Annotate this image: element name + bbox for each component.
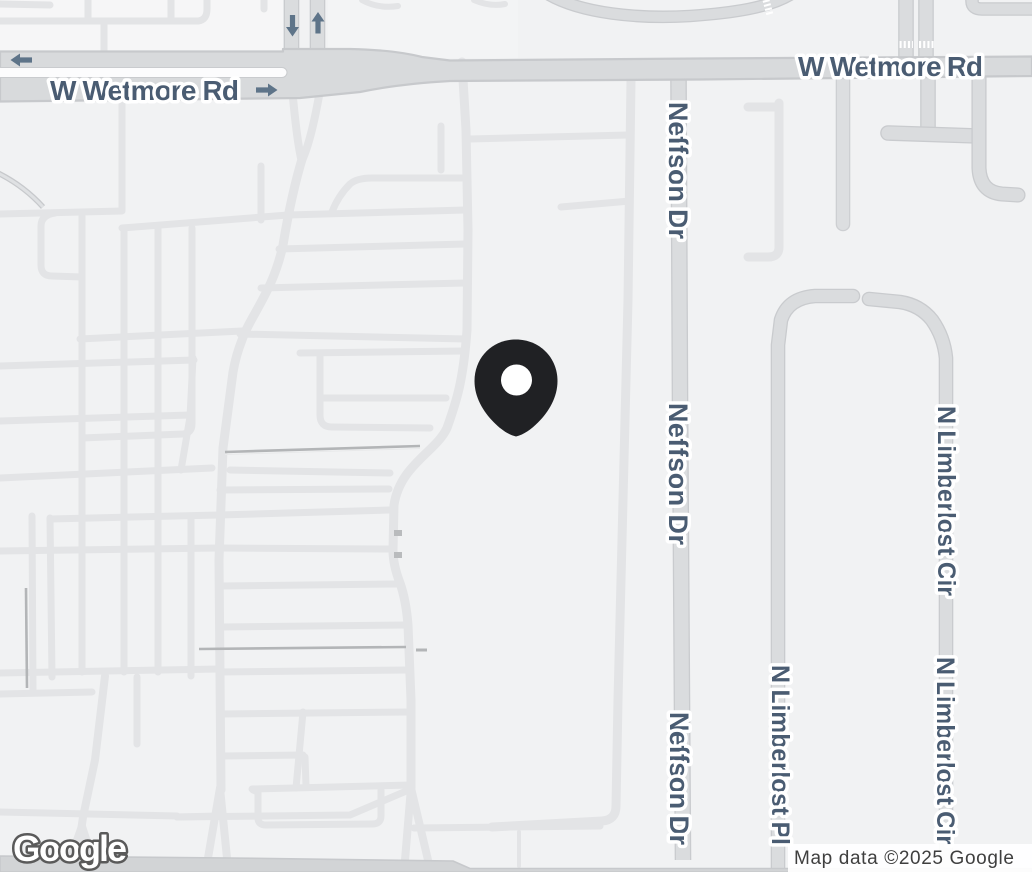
svg-text:W Wetmore Rd: W Wetmore Rd xyxy=(50,75,239,106)
svg-text:N Limberlost Cir: N Limberlost Cir xyxy=(931,657,959,845)
svg-text:Map data ©2025 Google: Map data ©2025 Google xyxy=(794,848,1014,869)
svg-text:Neffson Dr: Neffson Dr xyxy=(664,712,694,845)
svg-text:W Wetmore Rd: W Wetmore Rd xyxy=(798,51,983,82)
svg-text:Google: Google xyxy=(13,828,127,869)
svg-text:N Limberlost Pl: N Limberlost Pl xyxy=(766,665,794,845)
svg-text:Neffson Dr: Neffson Dr xyxy=(663,403,693,545)
svg-text:Neffson Dr: Neffson Dr xyxy=(663,102,693,239)
svg-text:N Limberlost Cir: N Limberlost Cir xyxy=(932,406,960,596)
